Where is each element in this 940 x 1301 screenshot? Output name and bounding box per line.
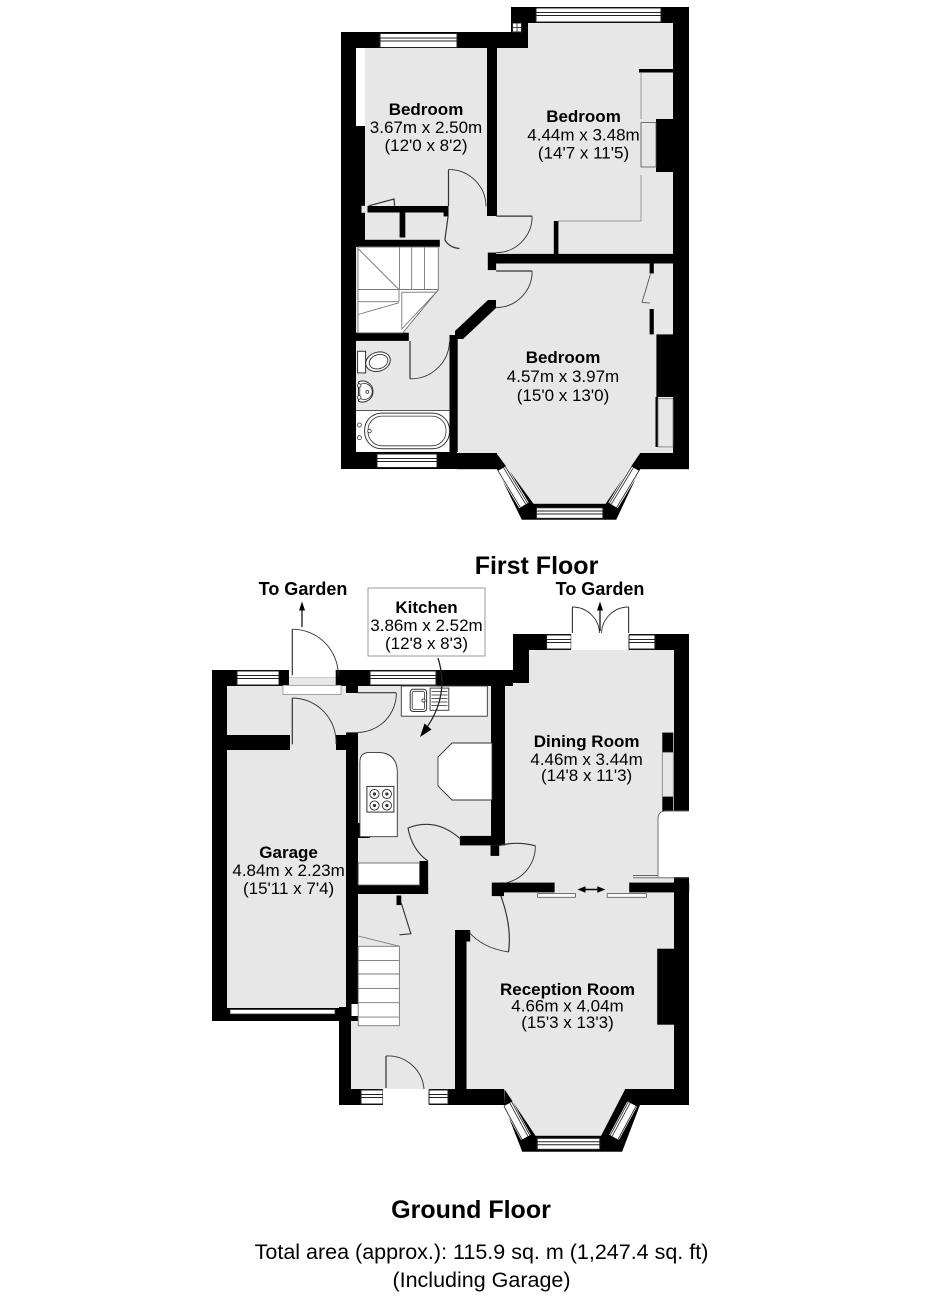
svg-text:(12'0 x 8'2): (12'0 x 8'2) [384, 136, 467, 155]
svg-text:Ground Floor: Ground Floor [391, 1196, 551, 1224]
svg-text:Dining Room: Dining Room [534, 732, 640, 751]
svg-text:(12'8 x 8'3): (12'8 x 8'3) [385, 634, 468, 653]
svg-text:4.57m x 3.97m: 4.57m x 3.97m [507, 367, 619, 386]
svg-text:Bedroom: Bedroom [526, 348, 601, 367]
svg-text:4.44m x 3.48m: 4.44m x 3.48m [527, 126, 639, 145]
svg-text:Garage: Garage [259, 843, 318, 862]
svg-text:(14'8 x 11'3): (14'8 x 11'3) [541, 766, 632, 785]
svg-text:3.86m x 2.52m: 3.86m x 2.52m [370, 616, 482, 635]
svg-text:(15'0 x 13'0): (15'0 x 13'0) [517, 386, 610, 405]
svg-text:4.84m x 2.23m: 4.84m x 2.23m [232, 861, 344, 880]
svg-text:(15'3 x 13'3): (15'3 x 13'3) [521, 1013, 614, 1032]
svg-text:(14'7 x 11'5): (14'7 x 11'5) [538, 144, 629, 163]
svg-text:(Including Garage): (Including Garage) [392, 1268, 570, 1292]
svg-text:First Floor: First Floor [475, 552, 599, 580]
svg-text:3.67m x 2.50m: 3.67m x 2.50m [370, 118, 482, 137]
svg-text:Total area (approx.): 115.9 sq: Total area (approx.): 115.9 sq. m (1,247… [255, 1240, 709, 1264]
svg-text:Bedroom: Bedroom [389, 100, 464, 119]
svg-text:To Garden: To Garden [556, 579, 645, 599]
svg-text:To Garden: To Garden [259, 579, 348, 599]
svg-text:Kitchen: Kitchen [395, 598, 457, 617]
svg-text:(15'11 x 7'4): (15'11 x 7'4) [243, 879, 334, 898]
svg-text:Bedroom: Bedroom [546, 107, 621, 126]
